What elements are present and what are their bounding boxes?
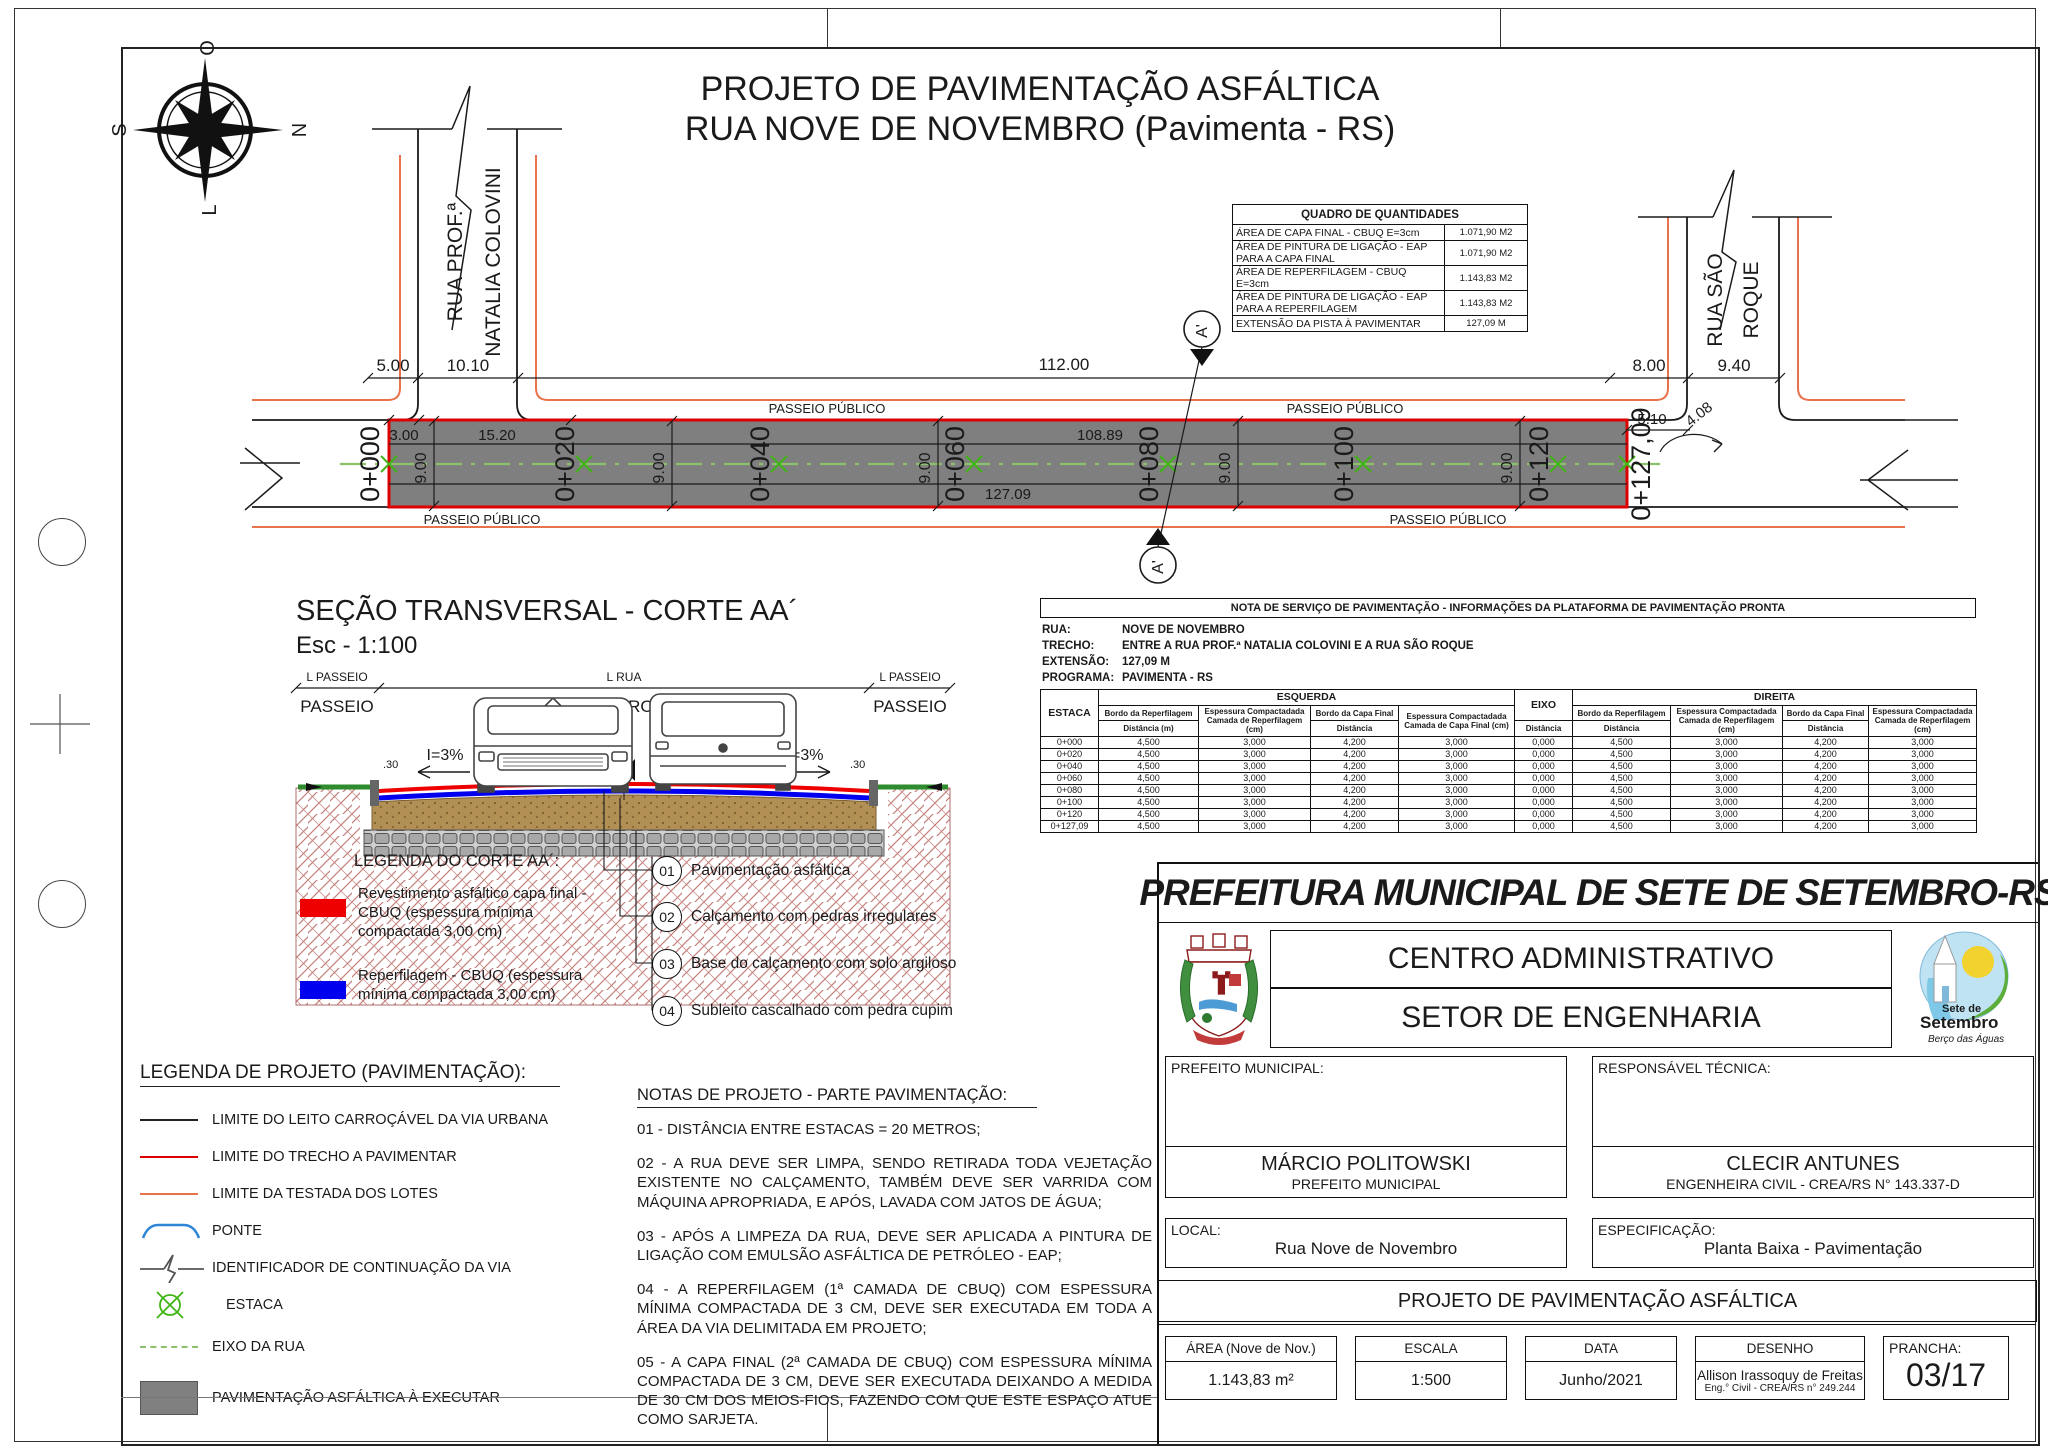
orange-line-icon (140, 1193, 198, 1195)
svg-text:L: L (199, 204, 221, 215)
legend-item-capa: Revestimento asfáltico capa final - CBUQ… (300, 885, 600, 941)
title-block-header: PREFEITURA MUNICIPAL DE SETE DE SETEMBRO… (1159, 864, 2038, 923)
registration-cross (30, 694, 90, 754)
quantities-table: QUADRO DE QUANTIDADES ÁREA DE CAPA FINAL… (1232, 204, 1528, 332)
prefeito-box: PREFEITO MUNICIPAL: (1165, 1056, 1567, 1148)
table-row: ÁREA DE PINTURA DE LIGAÇÃO - EAP PARA A … (1233, 241, 1528, 266)
note-item: 05 - A CAPA FINAL (2ª CAMADA DE CBUQ) CO… (637, 1353, 1152, 1430)
centro-box: CENTRO ADMINISTRATIVO (1270, 930, 1892, 988)
especificacao-box: ESPECIFICAÇÃO: Planta Baixa - Pavimentaç… (1592, 1218, 2034, 1268)
svg-text:PASSEIO PÚBLICO: PASSEIO PÚBLICO (769, 401, 886, 416)
svg-text:9.00: 9.00 (651, 452, 668, 483)
table-row: 0+0004,5003,0004,2003,0000,0004,5003,000… (1041, 736, 1977, 748)
service-note: NOTA DE SERVIÇO DE PAVIMENTAÇÃO - INFORM… (1040, 598, 1976, 833)
svg-text:9.00: 9.00 (1499, 452, 1516, 483)
callout-04: 04 Subleito cascalhado com pedra cupim (652, 996, 953, 1026)
svg-text:A': A' (1194, 324, 1211, 338)
service-note-title: NOTA DE SERVIÇO DE PAVIMENTAÇÃO - INFORM… (1040, 598, 1976, 618)
legend-item: LIMITE DO LEITO CARROÇÁVEL DA VIA URBANA (140, 1109, 570, 1131)
svg-text:108.89: 108.89 (1077, 427, 1123, 444)
svg-text:0+000: 0+000 (355, 426, 385, 502)
callout-02: 02 Calçamento com pedras irregulares (652, 902, 937, 932)
svg-text:.30: .30 (383, 759, 398, 771)
svg-text:9.40: 9.40 (1717, 356, 1750, 375)
base-layer (372, 795, 876, 830)
legend-item: LIMITE DA TESTADA DOS LOTES (140, 1183, 570, 1205)
axis-dashed-icon (140, 1346, 198, 1348)
svg-text:0+120: 0+120 (1524, 426, 1554, 502)
note-item: 04 - A REPERFILAGEM (1ª CAMADA DE CBUQ) … (637, 1280, 1152, 1338)
legend-item: PAVIMENTAÇÃO ASFÁLTICA À EXECUTAR (140, 1380, 570, 1416)
table-row: 0+127,094,5003,0004,2003,0000,0004,5003,… (1041, 820, 1977, 832)
car-front-icon (474, 698, 632, 792)
svg-text:ROQUE: ROQUE (1740, 261, 1763, 338)
responsavel-box: RESPONSÁVEL TÉCNICA: (1592, 1056, 2034, 1148)
note-item: 02 - A RUA DEVE SER LIMPA, SENDO RETIRAD… (637, 1154, 1152, 1212)
page-title: PROJETO DE PAVIMENTAÇÃO ASFÁLTICA (701, 70, 1380, 108)
svg-text:0+020: 0+020 (550, 426, 580, 502)
break-symbol (240, 448, 300, 510)
escala-box: ESCALA 1:500 (1355, 1336, 1507, 1400)
svg-text:0+100: 0+100 (1329, 426, 1359, 502)
svg-text:N: N (289, 123, 311, 137)
continuation-icon (140, 1253, 206, 1283)
red-swatch (300, 899, 346, 917)
svg-text:5.10: 5.10 (1637, 411, 1666, 428)
municipal-coat-of-arms (1171, 930, 1267, 1048)
svg-text:9.00: 9.00 (1217, 452, 1234, 483)
desenho-box: DESENHO Allison Irassoquy de Freitas Eng… (1695, 1336, 1865, 1400)
svg-text:0+040: 0+040 (745, 426, 775, 502)
responsavel-name-box: CLECIR ANTUNES ENGENHEIRA CIVIL - CREA/R… (1592, 1146, 2034, 1198)
title-block: PREFEITURA MUNICIPAL DE SETE DE SETEMBRO… (1157, 862, 2038, 1444)
compass-rose-icon: O N S L (109, 40, 311, 215)
svg-text:15.20: 15.20 (478, 427, 516, 444)
svg-text:3.00: 3.00 (389, 427, 418, 444)
table-row: ÁREA DE PINTURA DE LIGAÇÃO - EAP PARA A … (1233, 291, 1528, 316)
svg-text:0+060: 0+060 (940, 426, 970, 502)
legend-item: IDENTIFICADOR DE CONTINUAÇÃO DA VIA (140, 1257, 570, 1279)
table-row: 0+1204,5003,0004,2003,0000,0004,5003,000… (1041, 808, 1977, 820)
setor-box: SETOR DE ENGENHARIA (1270, 988, 1892, 1048)
legend-item: LIMITE DO TRECHO A PAVIMENTAR (140, 1146, 570, 1168)
table-row: 0+0204,5003,0004,2003,0000,0004,5003,000… (1041, 748, 1977, 760)
section-scale: Esc - 1:100 (296, 632, 417, 659)
table-row: PROGRAMA:PAVIMENTA - RS (1042, 671, 1474, 685)
quantities-title: QUADRO DE QUANTIDADES (1233, 205, 1528, 225)
svg-text:L PASSEIO: L PASSEIO (879, 670, 940, 684)
street-sao-roque: RUA SÃO ROQUE (1638, 170, 1905, 420)
svg-text:S: S (109, 123, 131, 136)
sete-setembro-logo: Sete de Setembro Berço das Águas (1904, 928, 2022, 1050)
svg-text:I=3%: I=3% (427, 747, 464, 764)
divider (1159, 1324, 2036, 1325)
legend-item: ESTACA (140, 1294, 570, 1316)
note-item: 01 - DISTÂNCIA ENTRE ESTACAS = 20 METROS… (637, 1120, 1152, 1139)
table-row: 0+0604,5003,0004,2003,0000,0004,5003,000… (1041, 772, 1977, 784)
note-item: 03 - APÓS A LIMPEZA DA RUA, DEVE SER APL… (637, 1227, 1152, 1265)
prefeito-name-box: MÁRCIO POLITOWSKI PREFEITO MUNICIPAL (1165, 1146, 1567, 1198)
plan-view: PROJETO DE PAVIMENTAÇÃO ASFÁLTICA RUA NO… (0, 0, 2048, 600)
project-notes-title: NOTAS DE PROJETO - PARTE PAVIMENTAÇÃO: (637, 1086, 1037, 1108)
svg-text:PASSEIO: PASSEIO (873, 697, 946, 716)
svg-text:8.00: 8.00 (1632, 356, 1665, 375)
project-banner: PROJETO DE PAVIMENTAÇÃO ASFÁLTICA (1159, 1280, 2037, 1322)
svg-text:PASSEIO PÚBLICO: PASSEIO PÚBLICO (1390, 512, 1507, 527)
dimensions-top: 5.00 10.10 112.00 8.00 9.40 (363, 355, 1785, 383)
svg-text:9.00: 9.00 (413, 452, 430, 483)
estaca-icon (154, 1289, 186, 1321)
svg-text:10.10: 10.10 (447, 356, 490, 375)
table-row: TRECHO:ENTRE A RUA PROF.ª NATALIA COLOVI… (1042, 639, 1474, 653)
prancha-box: PRANCHA: 03/17 (1883, 1336, 2009, 1400)
legend-item: EIXO DA RUA (140, 1336, 570, 1358)
break-symbol (1860, 420, 1958, 510)
table-row: ÁREA DE CAPA FINAL - CBUQ E=3cm1.071,90 … (1233, 225, 1528, 241)
black-line-icon (140, 1119, 198, 1121)
blue-swatch (300, 981, 346, 999)
page-subtitle: RUA NOVE DE NOVEMBRO (Pavimenta - RS) (685, 110, 1395, 148)
svg-text:112.00: 112.00 (1039, 355, 1090, 374)
svg-text:L PASSEIO: L PASSEIO (306, 670, 367, 684)
section-title: SEÇÃO TRANSVERSAL - CORTE AA´ (296, 593, 798, 627)
svg-text:PASSEIO PÚBLICO: PASSEIO PÚBLICO (424, 512, 541, 527)
callout-01: 01 Pavimentação asfáltica (652, 856, 850, 886)
svg-text:RUA PROF.ª: RUA PROF.ª (444, 202, 467, 321)
curb-left (370, 780, 379, 806)
car-rear-icon (650, 694, 796, 790)
svg-text:RUA SÃO: RUA SÃO (1703, 253, 1727, 346)
table-row: 0+0804,5003,0004,2003,0000,0004,5003,000… (1041, 784, 1977, 796)
svg-text:5.00: 5.00 (376, 356, 409, 375)
svg-text:A': A' (1150, 560, 1167, 574)
table-row: RUA:NOVE DE NOVEMBRO (1042, 623, 1474, 637)
project-legend: LEGENDA DE PROJETO (PAVIMENTAÇÃO): LIMIT… (140, 1062, 570, 1431)
svg-text:PASSEIO PÚBLICO: PASSEIO PÚBLICO (1287, 401, 1404, 416)
section-legend-title: LEGENDA DO CORTE AA´: (354, 852, 600, 871)
drawing-sheet: PROJETO DE PAVIMENTAÇÃO ASFÁLTICA RUA NO… (0, 0, 2048, 1448)
table-row: EXTENSÃO:127,09 M (1042, 655, 1474, 669)
punch-hole (38, 880, 86, 928)
area-box: ÁREA (Nove de Nov.) 1.143,83 m² (1165, 1336, 1337, 1400)
data-box: DATA Junho/2021 (1525, 1336, 1677, 1400)
project-notes: NOTAS DE PROJETO - PARTE PAVIMENTAÇÃO: 0… (637, 1086, 1152, 1444)
section-legend: LEGENDA DO CORTE AA´: Revestimento asfál… (300, 852, 600, 1031)
project-legend-title: LEGENDA DE PROJETO (PAVIMENTAÇÃO): (140, 1062, 560, 1087)
legend-item-reperfilagem: Reperfilagem - CBUQ (espessura mínima co… (300, 967, 600, 1005)
table-row: ÁREA DE REPERFILAGEM - CBUQ E=3cm1.143,8… (1233, 266, 1528, 291)
red-line-icon (140, 1156, 198, 1158)
table-row: EXTENSÃO DA PISTA À PAVIMENTAR127,09 M (1233, 316, 1528, 332)
svg-text:9.00: 9.00 (917, 452, 934, 483)
bridge-icon (140, 1220, 202, 1242)
curb-right (869, 780, 878, 806)
local-box: LOCAL: Rua Nove de Novembro (1165, 1218, 1567, 1268)
svg-text:PASSEIO: PASSEIO (300, 697, 373, 716)
service-note-table: ESTACA ESQUERDA EIXO DIREITA Bordo da Re… (1040, 689, 1977, 833)
svg-text:127.09: 127.09 (985, 486, 1031, 503)
callout-03: 03 Base do calçamento com solo argiloso (652, 949, 956, 979)
asphalt-swatch-icon (140, 1381, 198, 1415)
svg-text:O: O (197, 40, 219, 56)
svg-text:Setembro: Setembro (1920, 1013, 1998, 1032)
svg-text:NATALIA COLOVINI: NATALIA COLOVINI (482, 167, 505, 356)
svg-text:L RUA: L RUA (607, 670, 642, 684)
svg-text:Berço das Águas: Berço das Águas (1928, 1032, 2004, 1045)
table-row: 0+1004,5003,0004,2003,0000,0004,5003,000… (1041, 796, 1977, 808)
svg-text:.30: .30 (850, 759, 865, 771)
svg-text:0+080: 0+080 (1134, 426, 1164, 502)
service-note-info: RUA:NOVE DE NOVEMBROTRECHO:ENTRE A RUA P… (1040, 621, 1476, 687)
table-row: 0+0404,5003,0004,2003,0000,0004,5003,000… (1041, 760, 1977, 772)
legend-item: PONTE (140, 1220, 570, 1242)
